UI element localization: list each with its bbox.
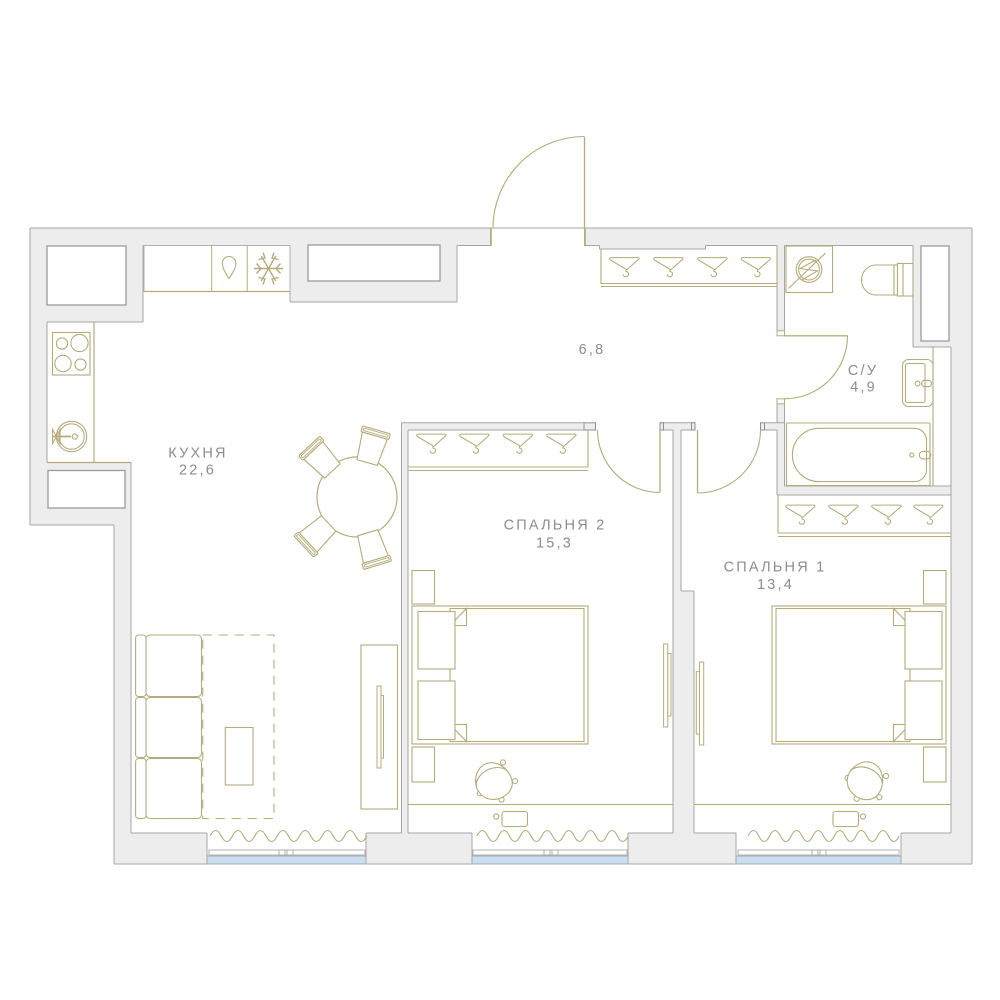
- svg-text:22,6: 22,6: [179, 463, 216, 479]
- svg-text:КУХНЯ: КУХНЯ: [168, 446, 227, 462]
- svg-text:15,3: 15,3: [536, 536, 573, 552]
- svg-text:СПАЛЬНЯ 1: СПАЛЬНЯ 1: [724, 560, 827, 576]
- svg-text:СПАЛЬНЯ 2: СПАЛЬНЯ 2: [504, 518, 607, 534]
- svg-text:13,4: 13,4: [757, 577, 794, 593]
- svg-text:6,8: 6,8: [579, 342, 606, 358]
- svg-text:С/У: С/У: [848, 363, 878, 379]
- svg-text:4,9: 4,9: [850, 380, 877, 396]
